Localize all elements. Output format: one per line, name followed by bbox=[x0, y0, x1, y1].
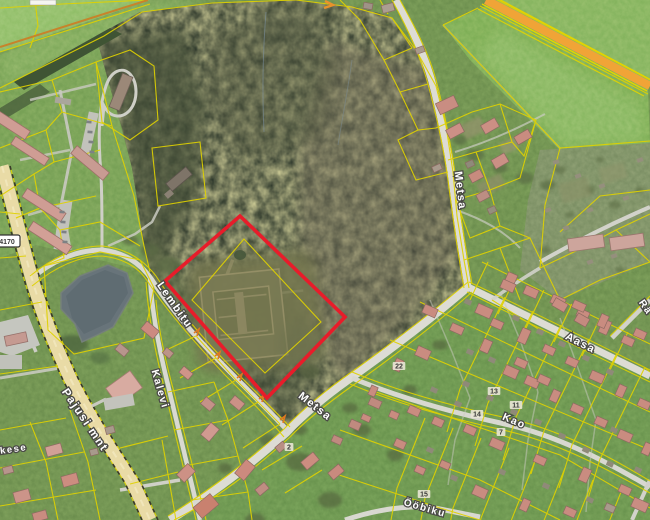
svg-text:11: 11 bbox=[512, 403, 520, 410]
svg-text:7: 7 bbox=[499, 430, 503, 437]
svg-text:22: 22 bbox=[395, 364, 403, 371]
svg-text:13: 13 bbox=[490, 389, 498, 396]
svg-text:15: 15 bbox=[420, 492, 428, 499]
svg-text:14: 14 bbox=[473, 412, 481, 419]
svg-text:2: 2 bbox=[287, 445, 291, 452]
svg-text:4170: 4170 bbox=[0, 239, 15, 246]
